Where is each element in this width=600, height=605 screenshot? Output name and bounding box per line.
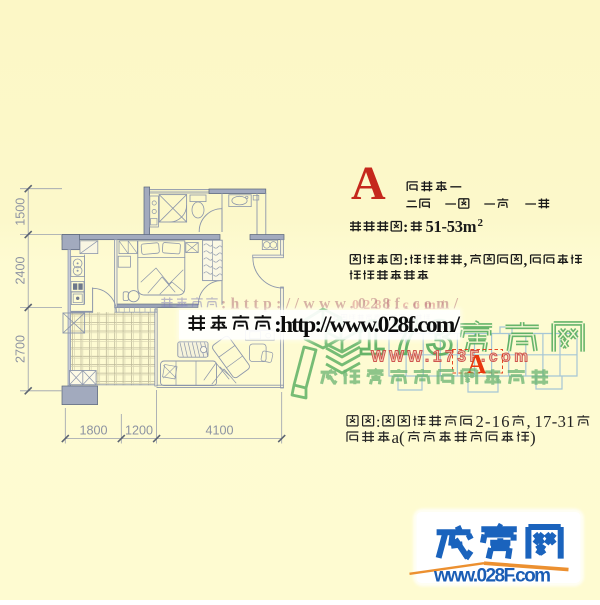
svg-text:,: , bbox=[524, 253, 528, 269]
svg-text:,: , bbox=[464, 253, 468, 269]
svg-text:a(: a( bbox=[392, 428, 406, 447]
svg-text:WWW.173F.com: WWW.173F.com bbox=[371, 349, 529, 366]
svg-text:): ) bbox=[530, 428, 536, 447]
svg-text::: : bbox=[404, 253, 409, 269]
svg-text:4100: 4100 bbox=[205, 424, 233, 438]
svg-text:2700: 2700 bbox=[14, 335, 28, 363]
svg-text:2400: 2400 bbox=[14, 256, 28, 284]
svg-text:17-31: 17-31 bbox=[535, 412, 575, 431]
svg-text::: : bbox=[403, 219, 408, 236]
svg-text:51-53m: 51-53m bbox=[426, 217, 477, 236]
svg-text:1800: 1800 bbox=[79, 424, 107, 438]
svg-text:1200: 1200 bbox=[125, 424, 153, 438]
svg-text:A: A bbox=[351, 157, 386, 210]
svg-text:2: 2 bbox=[478, 217, 484, 229]
svg-text::: : bbox=[376, 414, 380, 431]
svg-text:2-16: 2-16 bbox=[476, 412, 510, 431]
svg-text:1500: 1500 bbox=[14, 198, 28, 226]
svg-text::http://www.028f.com/: :http://www.028f.com/ bbox=[274, 312, 460, 338]
svg-text:www.028F.com: www.028F.com bbox=[433, 566, 551, 587]
